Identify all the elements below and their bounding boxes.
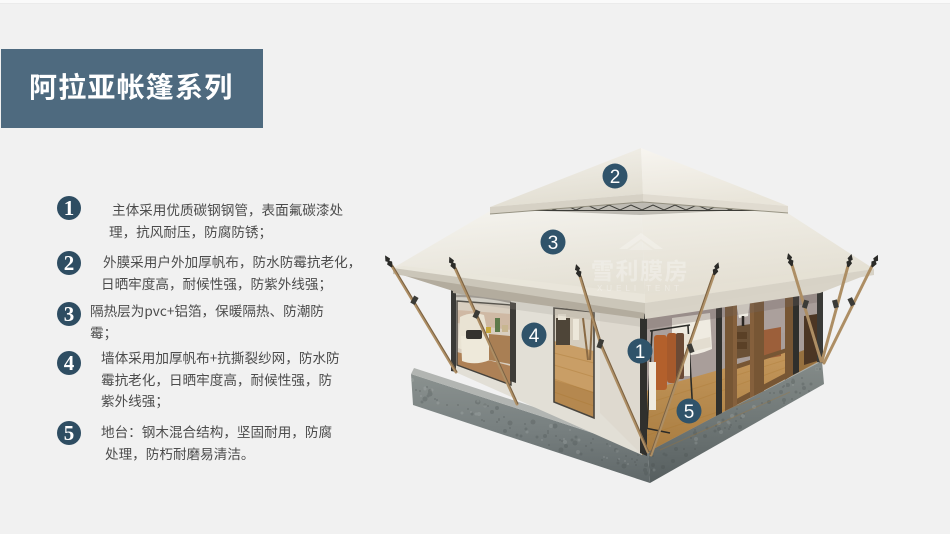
svg-text:1: 1 [635, 342, 646, 363]
svg-text:雪利膜房: 雪利膜房 [591, 252, 689, 286]
svg-text:2: 2 [610, 167, 621, 188]
svg-text:XUELI TENT: XUELI TENT [597, 284, 683, 293]
svg-text:3: 3 [548, 233, 559, 254]
svg-text:4: 4 [529, 326, 540, 347]
svg-text:5: 5 [684, 402, 695, 423]
